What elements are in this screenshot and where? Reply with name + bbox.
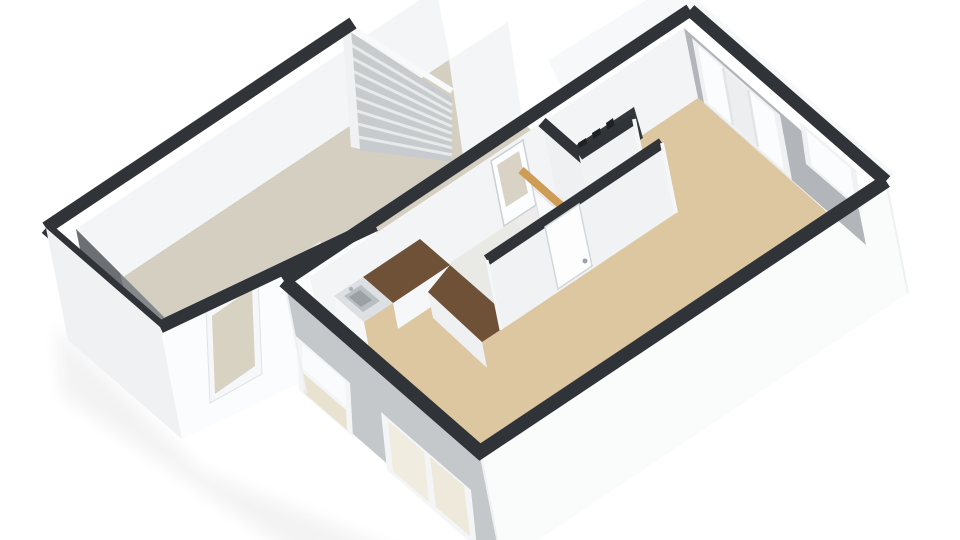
floorplan-scene (46, 0, 908, 540)
living-door-handle (583, 259, 588, 264)
sink-faucet (349, 287, 353, 291)
floorplan-viewport[interactable] (0, 0, 960, 540)
floorplan-svg (0, 0, 960, 540)
